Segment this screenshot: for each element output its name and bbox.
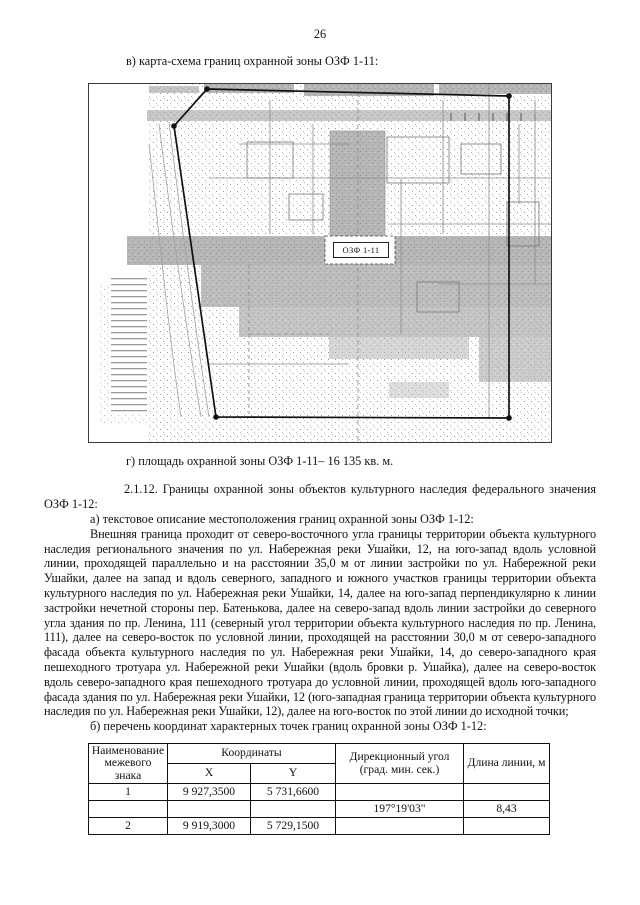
- item-a-line: а) текстовое описание местоположения гра…: [44, 512, 596, 527]
- line-length: [464, 784, 550, 801]
- mark-number: 1: [89, 784, 168, 801]
- coordinates-table: Наименование межевого знака Координаты Д…: [88, 743, 550, 835]
- col-header-angle: Дирекционный угол (град. мин. сек.): [336, 743, 464, 783]
- boundary-description: Внешняя граница проходит от северо-восто…: [44, 527, 596, 719]
- table-row: 1 9 927,3500 5 731,6600: [89, 784, 550, 801]
- mark-number: 2: [89, 818, 168, 835]
- line-length: 8,43: [464, 801, 550, 818]
- coord-x: 9 919,3000: [168, 818, 251, 835]
- clause-2-1-12: 2.1.12. Границы охранной зоны объектов к…: [44, 482, 596, 512]
- col-header-mark-name: Наименование межевого знака: [89, 743, 168, 783]
- coord-x: 9 927,3500: [168, 784, 251, 801]
- item-b-line: б) перечень координат характерных точек …: [44, 719, 596, 734]
- direction-angle: 197°19'03": [336, 801, 464, 818]
- coord-y: 5 729,1500: [251, 818, 336, 835]
- table-row: 197°19'03" 8,43: [89, 801, 550, 818]
- coord-y: 5 731,6600: [251, 784, 336, 801]
- mark-number: [89, 801, 168, 818]
- map-heading: в) карта-схема границ охранной зоны ОЗФ …: [0, 54, 640, 69]
- page-number: 26: [0, 0, 640, 42]
- area-caption: г) площадь охранной зоны ОЗФ 1-11– 16 13…: [0, 454, 640, 469]
- direction-angle: [336, 784, 464, 801]
- document-page: 26 в) карта-схема границ охранной зоны О…: [0, 0, 640, 905]
- col-header-coordinates: Координаты: [168, 743, 336, 763]
- cadastral-map: ОЗФ 1-11: [88, 83, 552, 443]
- map-zone-label: ОЗФ 1-11: [333, 242, 389, 258]
- direction-angle: [336, 818, 464, 835]
- coord-x: [168, 801, 251, 818]
- col-header-length: Длина линии, м: [464, 743, 550, 783]
- col-header-x: X: [168, 764, 251, 784]
- coord-y: [251, 801, 336, 818]
- line-length: [464, 818, 550, 835]
- table-row: 2 9 919,3000 5 729,1500: [89, 818, 550, 835]
- col-header-y: Y: [251, 764, 336, 784]
- cadastral-map-drawing: [89, 84, 551, 442]
